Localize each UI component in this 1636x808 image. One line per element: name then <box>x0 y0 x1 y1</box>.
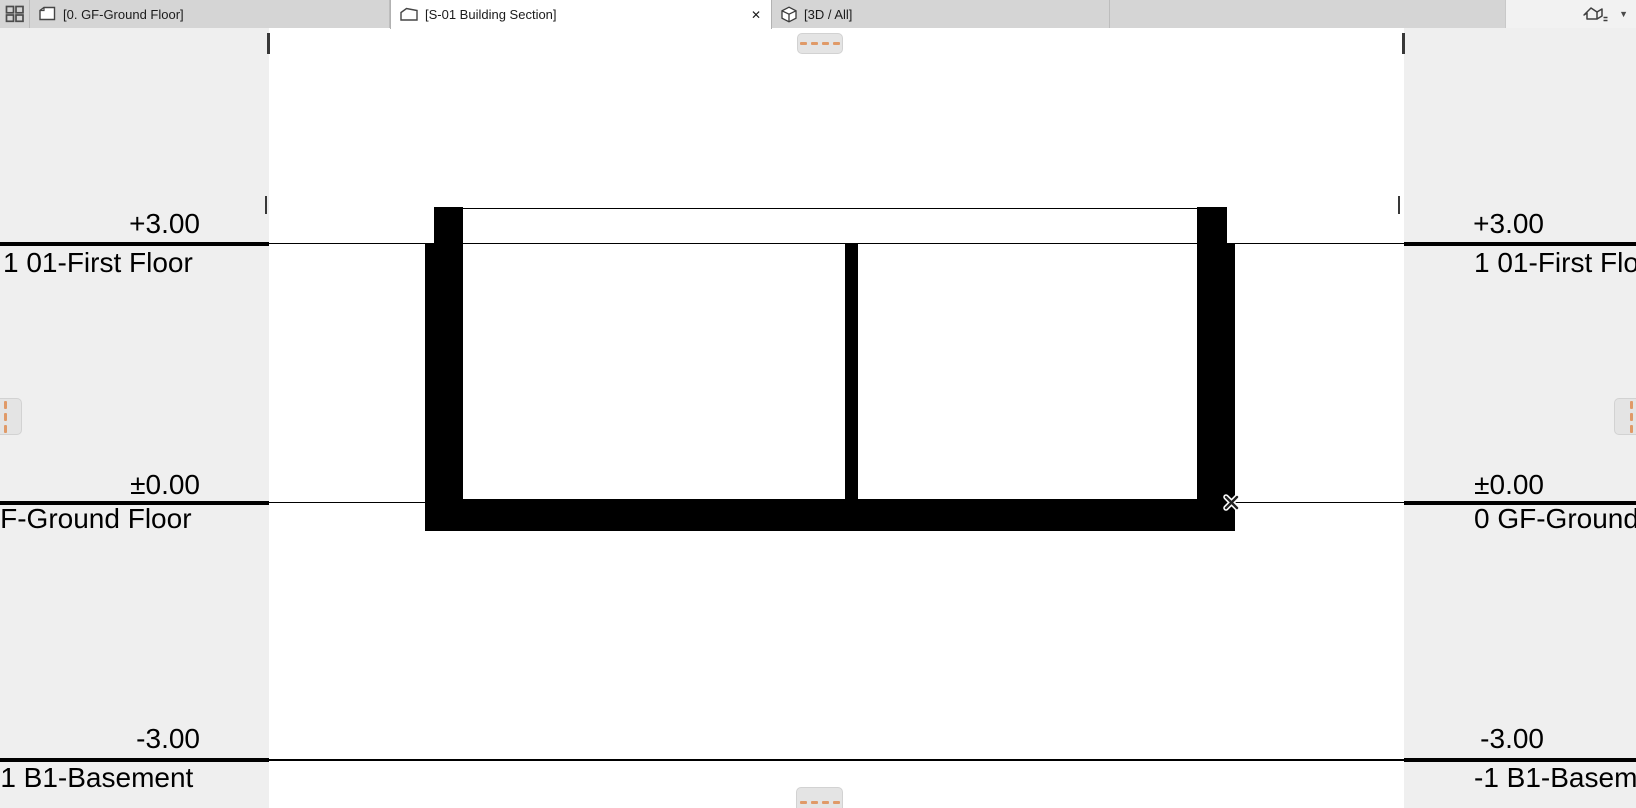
section-marker-icon <box>399 7 419 22</box>
wall-cut-left[interactable] <box>425 244 463 531</box>
scroll-dash <box>822 42 829 45</box>
close-icon[interactable]: ✕ <box>749 7 763 23</box>
scroll-dash <box>833 801 840 804</box>
story-name-label: -1 B1-Basement <box>1474 762 1636 794</box>
scroll-dash <box>833 42 840 45</box>
archicad-window: { "tab_bar": { "tabs": [ { "label": "[0.… <box>0 0 1636 808</box>
elevation-label: ±0.00 <box>1404 469 1544 501</box>
cursor-x-icon <box>1221 492 1242 513</box>
story-name-label: 1 01-First Floor <box>1474 247 1636 279</box>
scrollbar-handle-bottom[interactable] <box>796 787 843 808</box>
tab-label: [S-01 Building Section] <box>425 7 557 22</box>
level-line-marker-right <box>1404 242 1636 246</box>
scrollbar-handle-top[interactable] <box>797 33 843 54</box>
scrollbar-handle-right[interactable] <box>1614 398 1636 435</box>
caret-down-icon: ▼ <box>1619 10 1628 19</box>
elevation-label: -3.00 <box>1404 723 1544 755</box>
elevation-label: +3.00 <box>0 208 200 240</box>
wall-cut-right-parapet[interactable] <box>1197 207 1227 244</box>
story-name-label: 0 GF-Ground Floor <box>0 503 192 535</box>
section-limit-segment-left <box>265 196 267 214</box>
scroll-dash <box>800 801 807 804</box>
wall-cut-left-parapet[interactable] <box>434 207 463 244</box>
tab-3d-all[interactable]: [3D / All] <box>772 0 1110 28</box>
floor-plan-icon <box>38 6 57 22</box>
scroll-dash <box>1630 401 1633 409</box>
popup-navigator-icon <box>1582 5 1609 23</box>
story-name-label: 0 GF-Ground Floor <box>1474 503 1636 535</box>
popup-navigator-button[interactable]: ▼ <box>1505 0 1636 28</box>
scroll-dash <box>1630 425 1633 433</box>
section-limit-segment-right <box>1398 196 1400 214</box>
tab-overview-button[interactable] <box>0 0 30 28</box>
elevation-label: -3.00 <box>0 723 200 755</box>
elevation-label: ±0.00 <box>0 469 200 501</box>
wall-cut-interior[interactable] <box>845 244 858 499</box>
section-right-margin <box>1404 28 1636 808</box>
tab-bar-empty-space <box>1110 0 1505 28</box>
elevation-label: +3.00 <box>1404 208 1544 240</box>
tab-label: [0. GF-Ground Floor] <box>63 7 184 22</box>
scroll-dash <box>800 42 807 45</box>
section-limit-tick-left <box>267 33 270 54</box>
tab-overview-grid-icon <box>5 5 25 23</box>
scrollbar-handle-left[interactable] <box>0 398 22 435</box>
tab-label: [3D / All] <box>804 7 852 22</box>
level-line-marker-left <box>0 242 269 246</box>
scroll-dash <box>4 401 7 409</box>
story-name-label: -1 B1-Basement <box>0 762 193 794</box>
roof-slab-top-line[interactable] <box>463 208 1197 210</box>
tab-building-section[interactable]: [S-01 Building Section] ✕ <box>390 0 772 29</box>
scroll-dash <box>1630 413 1633 421</box>
story-name-label: 1 01-First Floor <box>3 247 193 279</box>
tab-floor-plan[interactable]: [0. GF-Ground Floor] <box>30 0 390 28</box>
slab-cut-ground-floor[interactable] <box>425 499 1235 531</box>
scroll-dash <box>822 801 829 804</box>
section-drawing-canvas[interactable]: +3.00 1 01-First Floor ±0.00 0 GF-Ground… <box>0 28 1636 808</box>
tab-bar: [0. GF-Ground Floor] [S-01 Building Sect… <box>0 0 1636 28</box>
level-line-basement <box>269 759 1404 761</box>
scroll-dash <box>811 801 818 804</box>
scroll-dash <box>811 42 818 45</box>
section-limit-tick-right <box>1402 33 1405 54</box>
scroll-dash <box>4 425 7 433</box>
scroll-dash <box>4 413 7 421</box>
wall-cut-right[interactable] <box>1197 244 1235 531</box>
cube-3d-icon <box>780 6 798 23</box>
section-left-margin <box>0 28 269 808</box>
